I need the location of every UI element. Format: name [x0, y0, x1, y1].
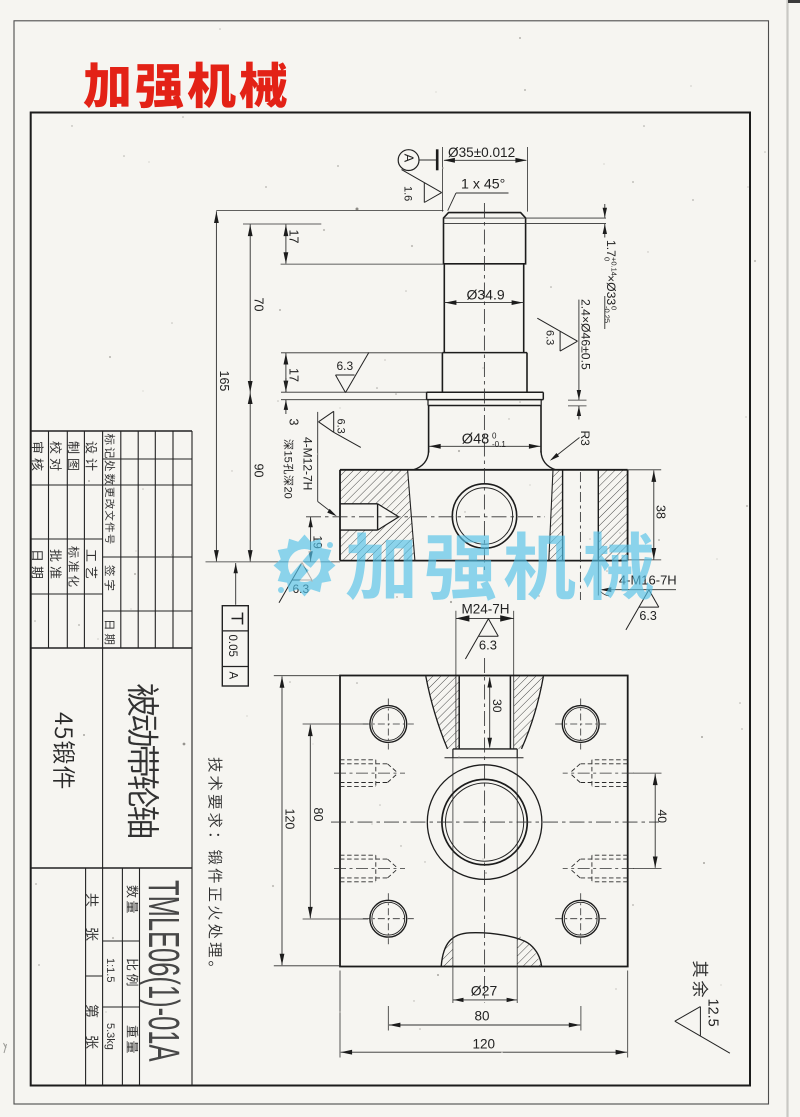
svg-text:1 x 45°: 1 x 45° — [461, 177, 505, 193]
svg-text:120: 120 — [283, 809, 297, 830]
svg-text:A: A — [402, 154, 416, 163]
svg-text:6.3: 6.3 — [479, 637, 497, 652]
svg-text:0.05: 0.05 — [226, 635, 238, 657]
svg-text:1:1.5: 1:1.5 — [104, 958, 116, 982]
svg-text:1.7: 1.7 — [604, 240, 618, 257]
svg-text:0: 0 — [602, 257, 611, 261]
svg-text:6.3: 6.3 — [334, 419, 346, 434]
svg-text:Ø27: Ø27 — [471, 983, 498, 999]
svg-text:Ø35±0.012: Ø35±0.012 — [448, 145, 515, 160]
svg-text:17: 17 — [286, 368, 300, 382]
svg-text:6.3: 6.3 — [639, 609, 656, 623]
svg-text:R3: R3 — [578, 431, 592, 447]
svg-text:×Ø33: ×Ø33 — [604, 275, 618, 305]
svg-text:6.3: 6.3 — [337, 359, 354, 373]
svg-text:A: A — [226, 672, 238, 680]
svg-text:17: 17 — [286, 230, 300, 244]
svg-text:40: 40 — [655, 810, 669, 824]
svg-text:70: 70 — [251, 298, 265, 312]
svg-text:165: 165 — [217, 371, 231, 392]
svg-text:6.3: 6.3 — [544, 330, 556, 345]
svg-text:1.6: 1.6 — [401, 186, 413, 201]
svg-text:2.4×Ø46±0.5: 2.4×Ø46±0.5 — [579, 299, 593, 370]
svg-text:Ø48: Ø48 — [462, 432, 489, 448]
svg-text:90: 90 — [251, 464, 265, 478]
svg-text:30: 30 — [490, 699, 504, 713]
svg-text:-0.25: -0.25 — [602, 306, 611, 323]
svg-text:-0.1: -0.1 — [492, 440, 506, 449]
svg-text:120: 120 — [473, 1037, 496, 1052]
svg-text:38: 38 — [653, 505, 667, 519]
svg-text:12.5: 12.5 — [705, 999, 721, 1027]
svg-text:4-M12-7H: 4-M12-7H — [301, 437, 315, 490]
svg-text:5.3kg: 5.3kg — [104, 1023, 116, 1050]
svg-text:20: 20 — [282, 487, 294, 499]
svg-text:M24-7H: M24-7H — [462, 602, 510, 617]
svg-text:TMLE06(1)-01A: TMLE06(1)-01A — [139, 880, 189, 1061]
svg-text:Ø34.9: Ø34.9 — [467, 287, 505, 303]
svg-text:80: 80 — [475, 1009, 490, 1024]
svg-text:80: 80 — [311, 808, 325, 822]
svg-text:15: 15 — [282, 451, 294, 463]
svg-text:3: 3 — [286, 419, 300, 426]
